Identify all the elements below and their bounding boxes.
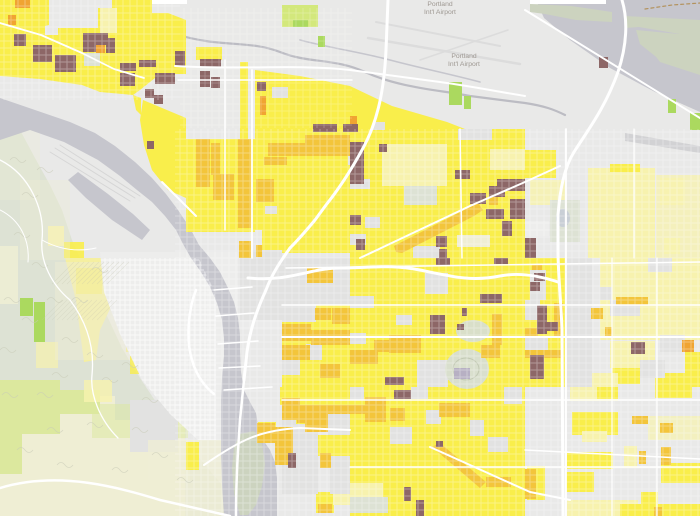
svg-text:Int'l Airport: Int'l Airport	[448, 61, 480, 68]
svg-text:Int'l Airport: Int'l Airport	[424, 9, 456, 16]
svg-text:Portland: Portland	[427, 1, 453, 8]
svg-text:Portland: Portland	[451, 53, 477, 60]
